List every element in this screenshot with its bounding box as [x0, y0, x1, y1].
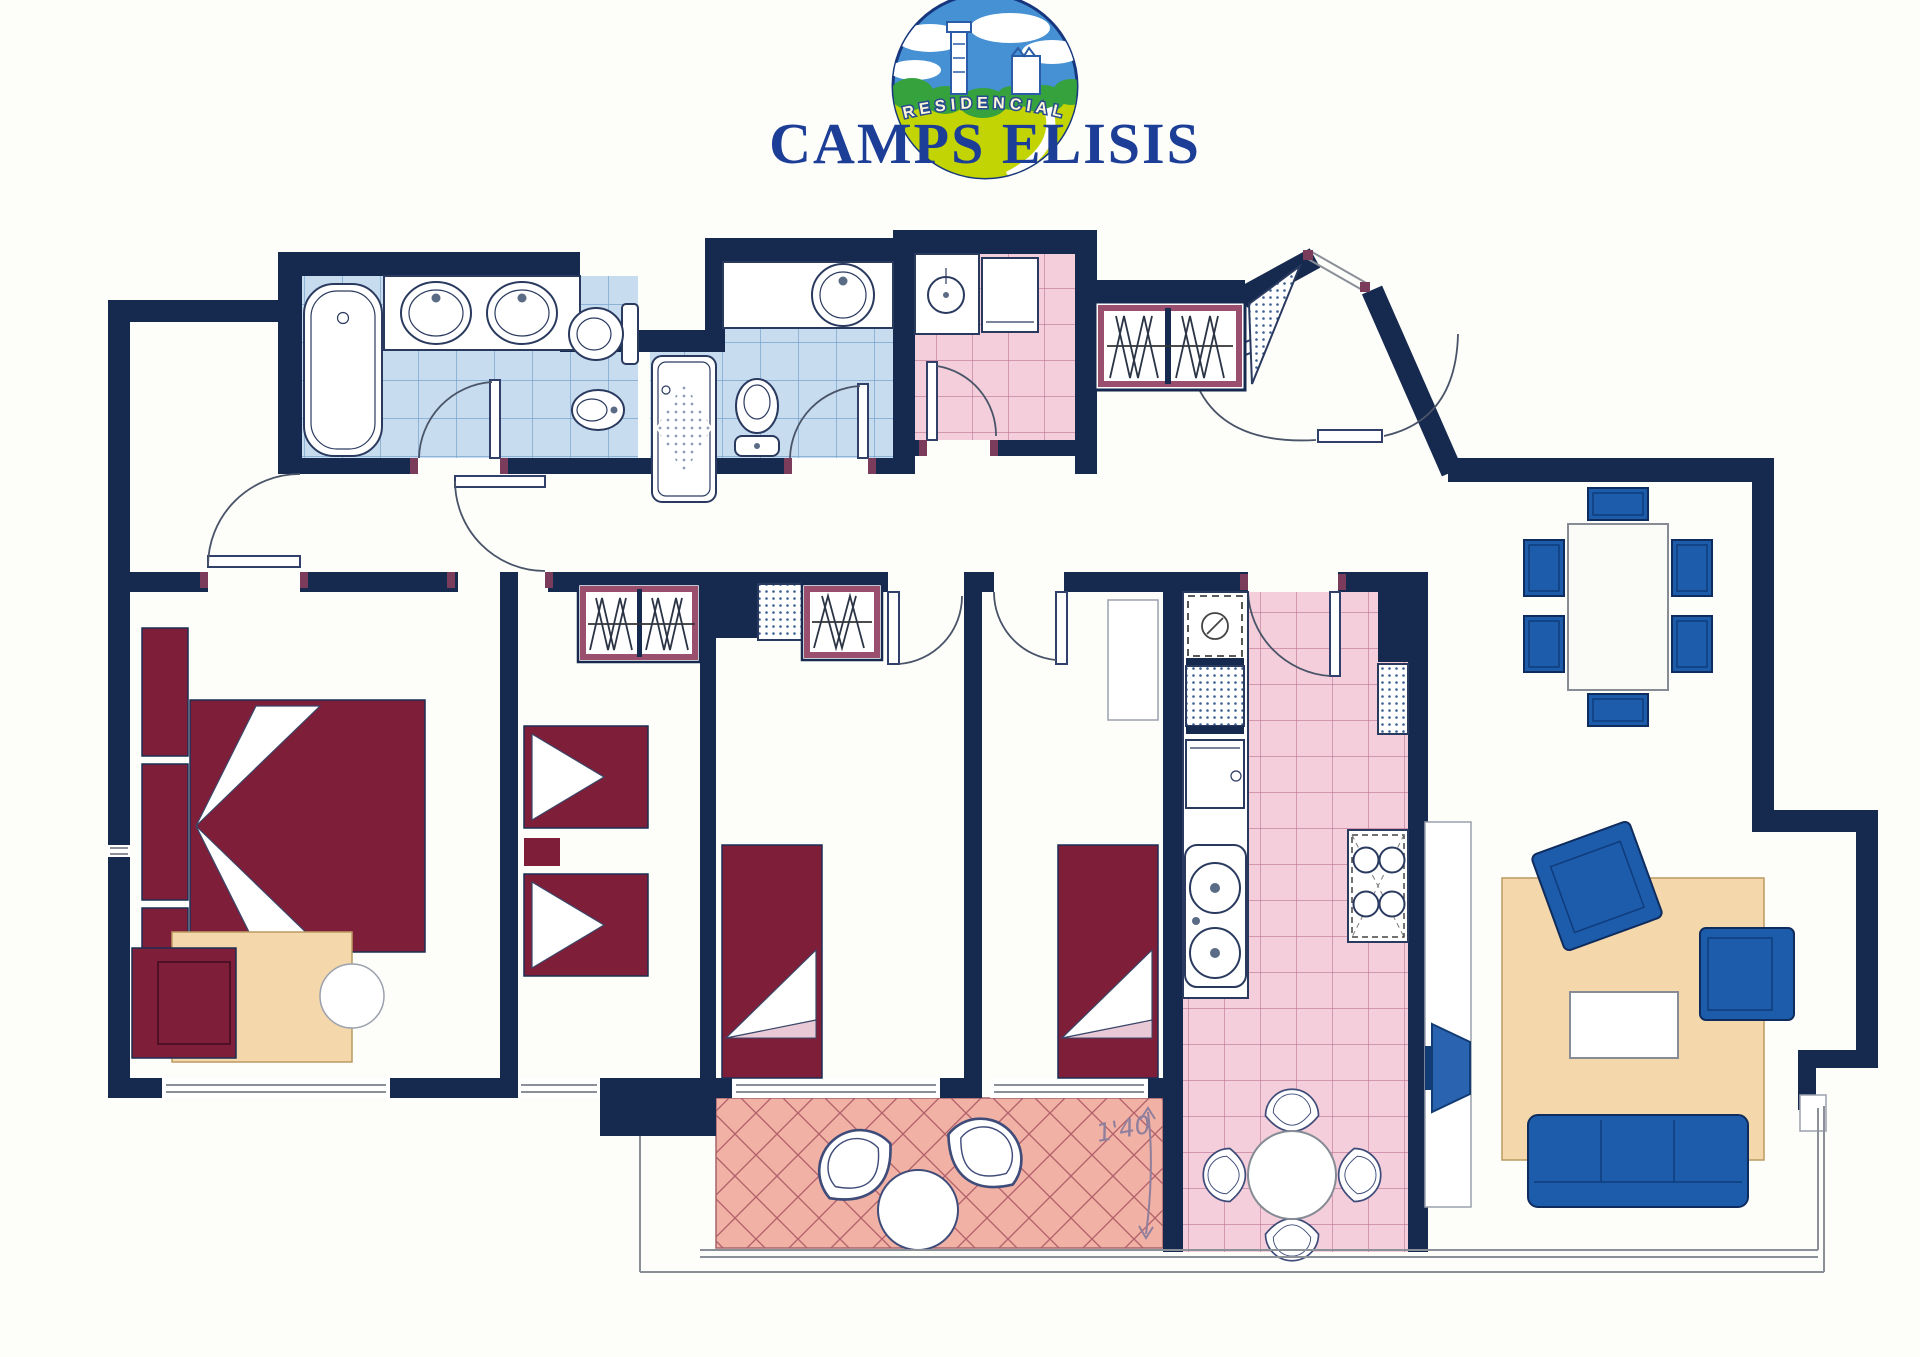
logo-title: CAMPS ELISIS: [769, 111, 1201, 176]
dining-chair: [1524, 540, 1564, 596]
kitchen-sink-icon: [1185, 845, 1246, 987]
bedroom3-window: [732, 1078, 940, 1098]
terrace-table: [878, 1170, 958, 1250]
sink-icon: [812, 264, 874, 326]
living-room: [1425, 820, 1826, 1207]
entry-closet: [1095, 302, 1245, 390]
twin-bed: [524, 874, 648, 976]
bedroom3: [722, 845, 822, 1078]
shower-tray: [652, 356, 716, 502]
nightstand: [524, 838, 560, 866]
left-wall-notch: [108, 845, 130, 857]
dining-chair: [1672, 616, 1712, 672]
balcony-step: [1800, 1095, 1826, 1131]
dining-area: [1524, 488, 1712, 726]
master-bedroom: [132, 628, 425, 1062]
single-bed: [1058, 845, 1158, 1078]
bidet-icon: [572, 390, 624, 430]
wardrobe-bedroom3: [802, 584, 882, 660]
master-armchair: [132, 948, 236, 1058]
bedroom3-door: [888, 592, 962, 664]
dining-chair: [1672, 540, 1712, 596]
floor-plan-canvas: RESIDENCIAL CAMPS ELISIS: [0, 0, 1920, 1357]
sink-icon: [487, 282, 557, 344]
master-door: [208, 474, 300, 567]
coffee-table: [1570, 992, 1678, 1058]
dining-chair: [1588, 694, 1648, 726]
toilet-icon: [569, 304, 638, 364]
twin-bed: [524, 726, 648, 828]
wardrobe-bedroom2: [578, 584, 700, 662]
washing-machine-icon: [982, 258, 1038, 332]
toilet-icon: [735, 379, 779, 456]
appliance-dotted: [1186, 658, 1244, 734]
built-in-wardrobe: [1108, 600, 1158, 720]
armchair: [1700, 928, 1794, 1020]
dining-chair: [1524, 616, 1564, 672]
logo: RESIDENCIAL CAMPS ELISIS: [769, 0, 1201, 188]
bedroom2: [524, 726, 648, 976]
logo-tower-icon: [947, 22, 971, 94]
bedroom2-window: [518, 1078, 600, 1098]
sofa: [1528, 1115, 1748, 1207]
bathtub: [304, 284, 382, 456]
oven-icon: [1186, 740, 1244, 808]
single-bed: [722, 845, 822, 1078]
bedroom4: [1058, 600, 1158, 1078]
laundry-room: [915, 254, 1038, 334]
sink-icon: [401, 282, 471, 344]
bedroom2-door: [455, 476, 545, 571]
master-window: [162, 1078, 390, 1098]
appliance-dotted: [1378, 664, 1408, 734]
bedroom4-door: [994, 592, 1067, 664]
dining-table: [1568, 524, 1668, 690]
tv-cabinet: [1425, 822, 1471, 1207]
dining-chair: [1588, 488, 1648, 520]
bedroom4-window: [990, 1078, 1148, 1098]
fridge-icon: [1188, 596, 1242, 656]
side-table: [320, 964, 384, 1028]
stove-icon: [1348, 830, 1408, 942]
hall-duct: [758, 584, 802, 640]
